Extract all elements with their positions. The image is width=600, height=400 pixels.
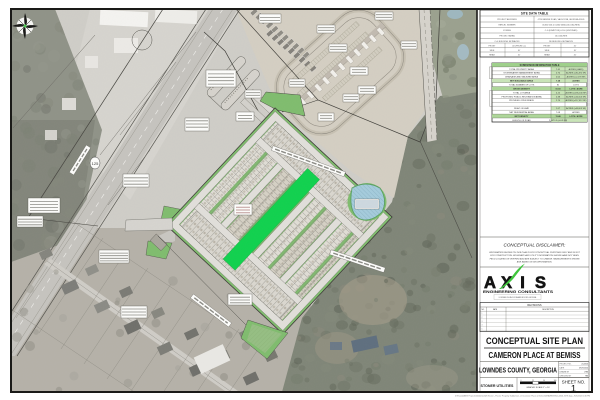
svg-text:ACRES (±185,130 SF): ACRES (±185,130 SF): [565, 91, 586, 94]
svg-text:SIDE: SIDE: [545, 50, 550, 52]
svg-text:16.01 ACRES: 16.01 ACRES: [555, 35, 568, 38]
svg-text:GRAPHIC SCALE 1" = 50': GRAPHIC SCALE 1" = 50': [526, 386, 550, 389]
svg-text:NET BUILDABLE AREA: NET BUILDABLE AREA: [510, 80, 534, 83]
svg-text:ACRES (LAND): ACRES (LAND): [569, 68, 584, 71]
svg-text:ACRES (±2,178 SF): ACRES (±2,178 SF): [567, 76, 586, 79]
svg-text:4: 4: [482, 325, 483, 327]
svg-text:ACRES: ACRES: [572, 111, 580, 114]
svg-text:LOTS: LOTS: [573, 84, 579, 86]
svg-text:CONCEPTUAL DISCLAIMER:: CONCEPTUAL DISCLAIMER:: [504, 243, 567, 248]
svg-text:C-G BUILDING SETBACKS: C-G BUILDING SETBACKS: [495, 40, 521, 43]
svg-text:ARE BASED ON GIS INFORMATION.: ARE BASED ON GIS INFORMATION.: [516, 261, 553, 264]
svg-text:PROJECT AREA: PROJECT AREA: [499, 35, 515, 38]
svg-text:CHECKED BY: CHECKED BY: [560, 375, 572, 377]
svg-text:24-0326: 24-0326: [581, 363, 588, 365]
svg-text:DRAWN BY: DRAWN BY: [560, 370, 570, 373]
svg-text:Z:\Shared\AXIS Projects\2024\2: Z:\Shared\AXIS Projects\2024\24-0326 Sto…: [455, 394, 591, 397]
svg-text:C-G (DRAYTON) & R-6 (UNZONED): C-G (DRAYTON) & R-6 (UNZONED): [545, 29, 578, 32]
svg-text:TOTAL PROPERTY AREA: TOTAL PROPERTY AREA: [509, 68, 534, 71]
svg-text:ACRES (±16,553 SF): ACRES (±16,553 SF): [566, 95, 586, 98]
svg-text:LOWNDES COUNTY, GEORGIA: LOWNDES COUNTY, GEORGIA: [479, 366, 557, 375]
svg-text:DESCRIPTION: DESCRIPTION: [542, 309, 554, 311]
svg-text:ZONING: ZONING: [503, 30, 511, 32]
svg-text:5: 5: [482, 328, 483, 330]
svg-text:PROVIDED OPEN SPACE: PROVIDED OPEN SPACE: [509, 99, 534, 102]
svg-text:ACRES (±30,492 SF): ACRES (±30,492 SF): [566, 72, 586, 75]
svg-text:DRAINAGE AND WALKWAY AREA: DRAINAGE AND WALKWAY AREA: [505, 76, 538, 79]
svg-text:11.48: 11.48: [555, 115, 561, 118]
svg-text:2,147 LF (±0.41 MI): 2,147 LF (±0.41 MI): [549, 120, 568, 122]
svg-text:RIGHT-OF-WAY: RIGHT-OF-WAY: [514, 107, 530, 110]
svg-text:REVISIONS: REVISIONS: [527, 303, 541, 307]
svg-text:REAR: REAR: [544, 53, 550, 56]
svg-text:LENGTH OF ROAD: LENGTH OF ROAD: [512, 119, 531, 122]
svg-text:ACRES (±117,612 SF): ACRES (±117,612 SF): [566, 99, 587, 102]
svg-text:SITE DATA TABLE: SITE DATA TABLE: [521, 11, 549, 15]
svg-text:3: 3: [482, 321, 483, 323]
svg-text:SIDE: SIDE: [490, 50, 495, 52]
svg-text:FRONT: FRONT: [489, 45, 497, 47]
svg-text:ACRES: ACRES: [572, 80, 580, 83]
svg-text:JRM: JRM: [584, 371, 588, 373]
svg-text:0146D 066 & 0146D 066A (16.01: 0146D 066 & 0146D 066A (16.01 ACRES): [542, 24, 580, 27]
svg-text:R6 BUILDING SETBACKS: R6 BUILDING SETBACKS: [549, 40, 573, 43]
svg-text:STONER UTILITIES: STONER UTILITIES: [481, 384, 514, 388]
svg-text:PARCEL NUMBER: PARCEL NUMBER: [498, 24, 516, 27]
svg-text:FRONT: FRONT: [544, 45, 552, 47]
svg-text:ACRES (±46,609 SF): ACRES (±46,609 SF): [566, 107, 586, 110]
svg-text:TOTAL LOT AREA: TOTAL LOT AREA: [513, 91, 531, 94]
svg-text:LOTS / ACRE: LOTS / ACRE: [569, 87, 583, 90]
svg-text:CAMERON PLACE AT BEMISS: CAMERON PLACE AT BEMISS: [489, 351, 581, 360]
svg-text:NET RESIDENTIAL AREA: NET RESIDENTIAL AREA: [509, 111, 534, 114]
svg-text:PROJECT NO.: PROJECT NO.: [560, 363, 573, 365]
svg-text:2: 2: [482, 317, 483, 319]
svg-text:TOTAL NUMBER OF LOTS: TOTAL NUMBER OF LOTS: [509, 83, 535, 86]
svg-text:09/25/2024: 09/25/2024: [579, 367, 588, 369]
svg-text:NET DENSITY: NET DENSITY: [515, 116, 529, 118]
svg-text:NO.: NO.: [481, 309, 485, 311]
svg-text:INFORMATION SHOWN ON THIS PLAN: INFORMATION SHOWN ON THIS PLAN IS FOR CO…: [489, 251, 580, 254]
svg-text:REAR: REAR: [489, 53, 495, 56]
svg-text:SUBDIVISION INFORMATION TABLE: SUBDIVISION INFORMATION TABLE: [520, 64, 560, 67]
svg-text:FOR CONSTRUCTION. BOUNDARY AND: FOR CONSTRUCTION. BOUNDARY AND UTILITY I…: [490, 254, 579, 257]
svg-text:1: 1: [482, 313, 483, 315]
svg-text:STORMWATER MANAGEMENT AREA: STORMWATER MANAGEMENT AREA: [503, 72, 540, 75]
svg-text:ENGINEERING CONSULTANTS: ENGINEERING CONSULTANTS: [483, 290, 554, 294]
svg-text:40' (FROM CL): 40' (FROM CL): [512, 45, 526, 47]
svg-text:GROSS DENSITY: GROSS DENSITY: [513, 88, 531, 90]
svg-text:FIELD LOCATED OR VERIFIED AND: FIELD LOCATED OR VERIFIED AND ARE SUBJEC…: [490, 257, 580, 260]
svg-text:LOTS / ACRE: LOTS / ACRE: [569, 115, 583, 118]
svg-text:PROPOSED PUBLIC RECREATION ARE: PROPOSED PUBLIC RECREATION AREA: [501, 95, 542, 98]
svg-text:10.93: 10.93: [555, 88, 561, 90]
svg-text:4720 BEMISS ROAD, VALDOSTA, GE: 4720 BEMISS ROAD, VALDOSTA, GEORGIA 3160…: [538, 18, 586, 21]
svg-text:CONCEPTUAL SITE PLAN: CONCEPTUAL SITE PLAN: [486, 335, 583, 346]
svg-text:PROJECT ADDRESS: PROJECT ADDRESS: [497, 18, 517, 21]
svg-text:DATE: DATE: [560, 366, 565, 369]
